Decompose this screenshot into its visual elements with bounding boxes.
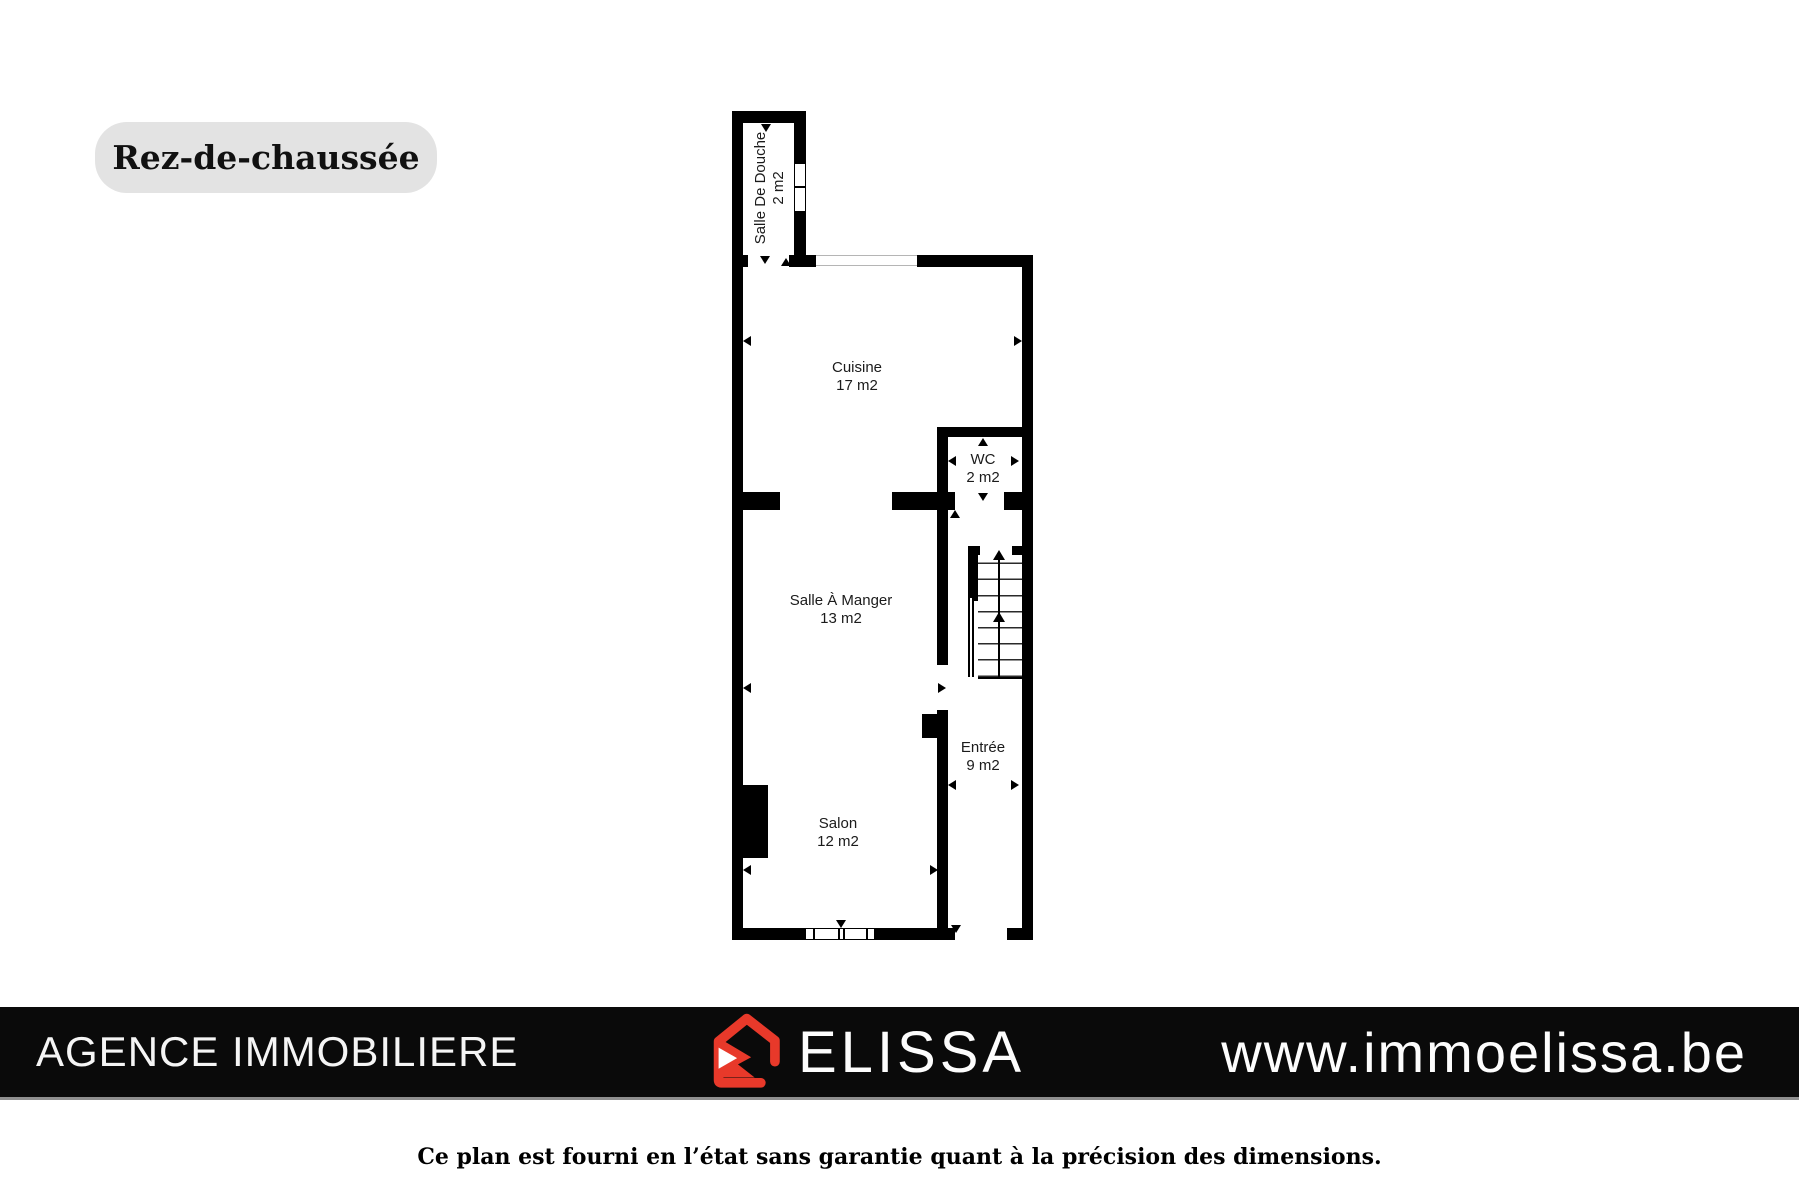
direction-tick-icon (950, 510, 960, 518)
direction-tick-icon (760, 256, 770, 264)
wall (732, 928, 805, 940)
direction-tick-icon (1011, 456, 1019, 466)
direction-tick-icon (743, 336, 751, 346)
room-name: Salle À Manger (790, 592, 893, 610)
brand-name: ELISSA (798, 1007, 1025, 1097)
wall (937, 427, 948, 665)
wall (789, 255, 816, 267)
room-area: 12 m2 (817, 833, 859, 851)
wall (732, 255, 748, 267)
stair-direction-arrow-icon (993, 550, 1005, 560)
stair-direction-arrow-icon (993, 612, 1005, 622)
room-area: 13 m2 (790, 610, 893, 628)
radiator-block (922, 714, 947, 738)
room-label-wc: WC 2 m2 (966, 451, 999, 487)
agency-name: AGENCE IMMOBILIERE (36, 1007, 518, 1097)
direction-tick-icon (743, 683, 751, 693)
room-name: Cuisine (832, 359, 882, 377)
red-house-icon (701, 1010, 789, 1094)
window-living-mullion (843, 929, 845, 939)
wall (732, 492, 780, 510)
room-label-living: Salon 12 m2 (817, 815, 859, 851)
wall (1022, 255, 1033, 940)
room-area: 2 m2 (770, 132, 788, 245)
wall (1007, 928, 1033, 940)
stair-rail (968, 598, 974, 677)
direction-tick-icon (1014, 336, 1022, 346)
disclaimer-text: Ce plan est fourni en l’état sans garant… (0, 1144, 1799, 1170)
window-living-mullion (838, 929, 840, 939)
room-area: 2 m2 (966, 469, 999, 487)
wall (892, 492, 955, 510)
direction-tick-icon (836, 920, 846, 928)
room-name: Salon (817, 815, 859, 833)
window-shower-mullion (795, 186, 805, 188)
room-area: 9 m2 (961, 757, 1005, 775)
room-area: 17 m2 (832, 377, 882, 395)
window-shower (794, 163, 806, 212)
window-kitchen (816, 255, 917, 266)
room-label-shower: Salle De Douche 2 m2 (752, 132, 788, 245)
room-name: Salle De Douche (752, 132, 770, 245)
direction-tick-icon (781, 258, 791, 266)
window-living-mullion (813, 929, 815, 939)
window-living (805, 928, 875, 940)
wall (794, 111, 806, 163)
direction-tick-icon (951, 925, 961, 933)
room-name: Entrée (961, 739, 1005, 757)
direction-tick-icon (978, 438, 988, 446)
wall (1004, 492, 1022, 510)
room-name: WC (966, 451, 999, 469)
wall (794, 212, 806, 259)
direction-tick-icon (938, 683, 946, 693)
direction-tick-icon (1011, 780, 1019, 790)
direction-tick-icon (930, 865, 938, 875)
room-label-entry: Entrée 9 m2 (961, 739, 1005, 775)
direction-tick-icon (743, 865, 751, 875)
chimney-block (742, 785, 768, 858)
wall (917, 255, 1033, 267)
wall (875, 928, 955, 940)
website-url: www.immoelissa.be (1221, 1007, 1747, 1097)
stair-wall (968, 546, 978, 601)
room-label-dining: Salle À Manger 13 m2 (790, 592, 893, 628)
direction-tick-icon (948, 780, 956, 790)
window-living-mullion (866, 929, 868, 939)
room-label-kitchen: Cuisine 17 m2 (832, 359, 882, 395)
direction-tick-icon (948, 456, 956, 466)
wall (938, 427, 1022, 437)
wall (937, 710, 948, 940)
direction-tick-icon (978, 493, 988, 501)
